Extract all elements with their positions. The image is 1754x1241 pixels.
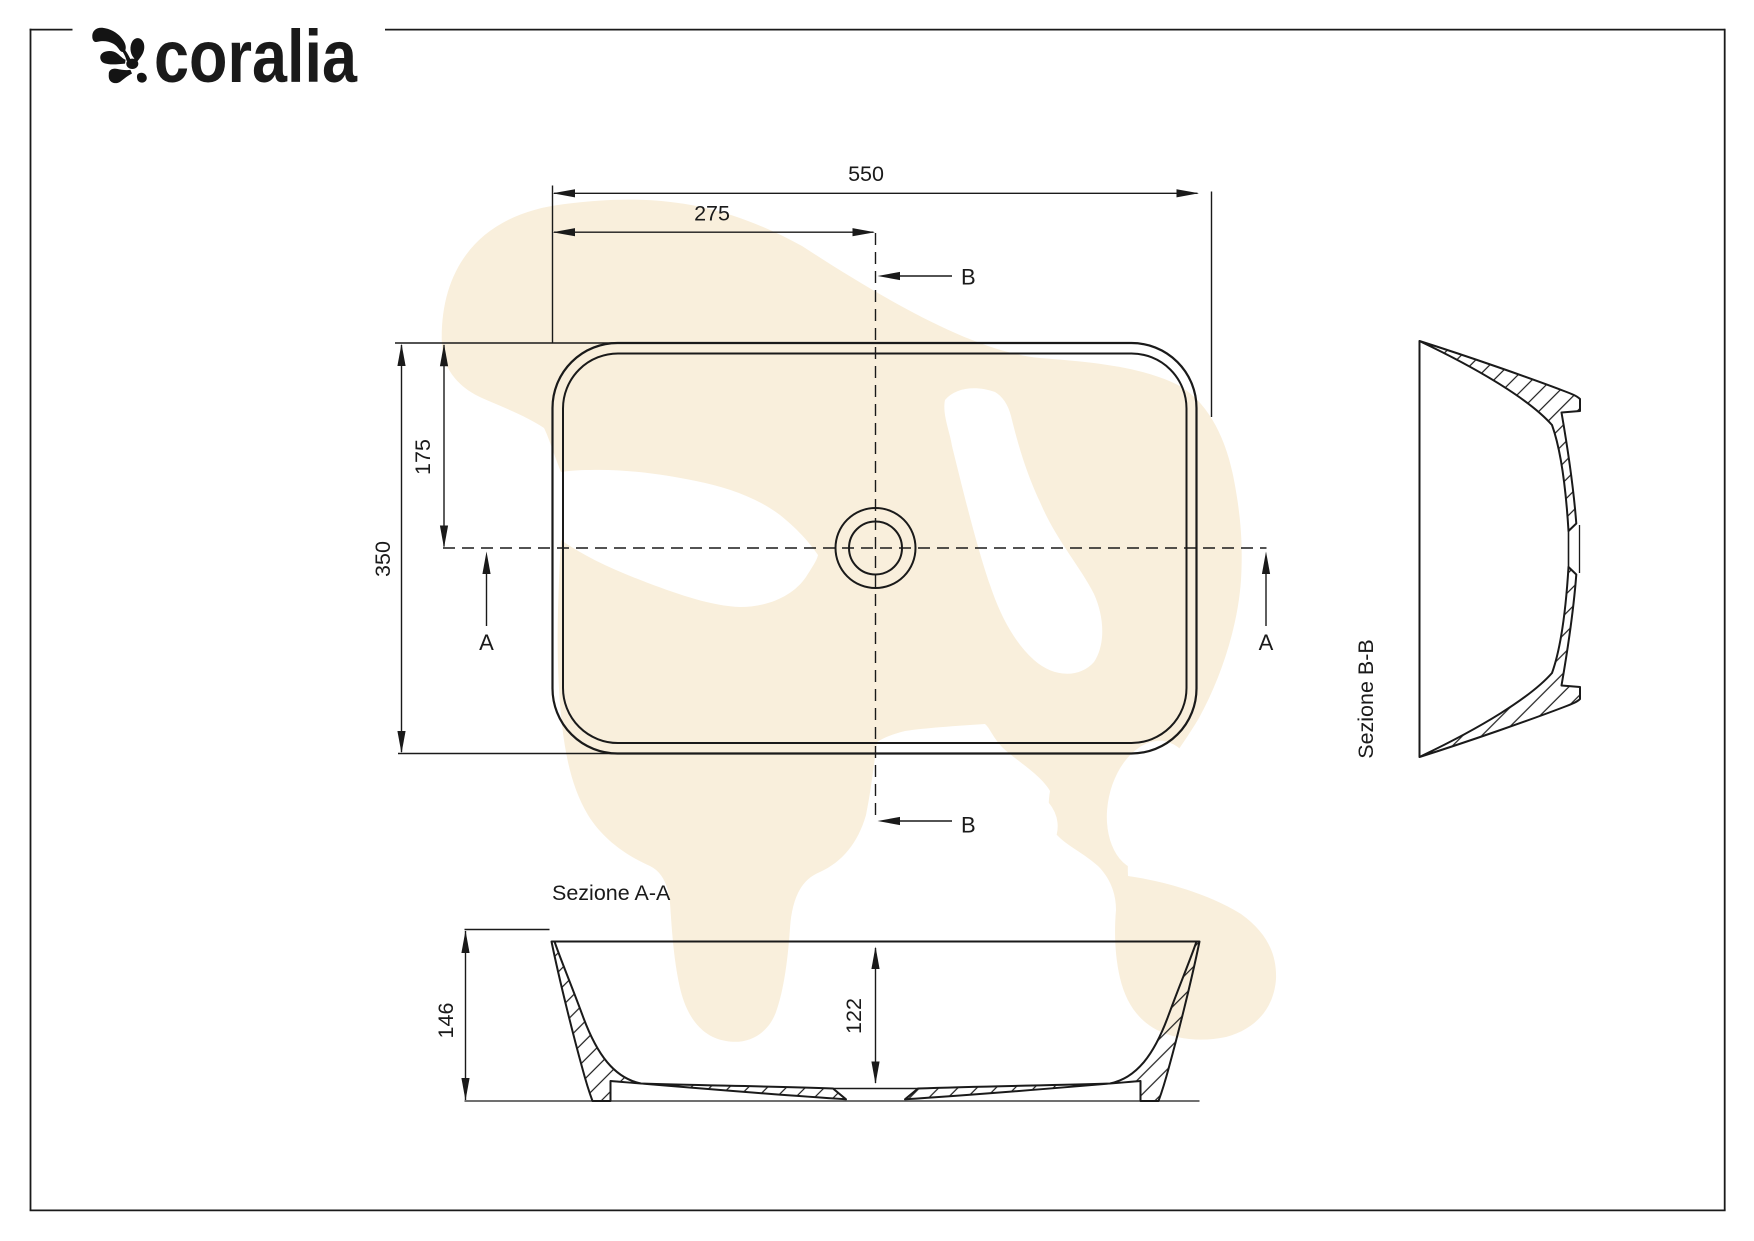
svg-text:122: 122 (842, 998, 866, 1034)
svg-text:Sezione A-A: Sezione A-A (552, 881, 671, 905)
svg-text:550: 550 (848, 162, 884, 186)
svg-text:350: 350 (371, 541, 395, 577)
svg-text:A: A (1259, 630, 1274, 655)
svg-text:Sezione B-B: Sezione B-B (1354, 639, 1378, 759)
svg-text:coralia: coralia (154, 15, 358, 98)
svg-text:B: B (961, 813, 976, 838)
svg-text:275: 275 (694, 202, 730, 226)
svg-text:146: 146 (434, 1003, 458, 1039)
svg-text:175: 175 (411, 439, 435, 475)
svg-text:B: B (961, 265, 976, 290)
svg-text:A: A (479, 630, 494, 655)
